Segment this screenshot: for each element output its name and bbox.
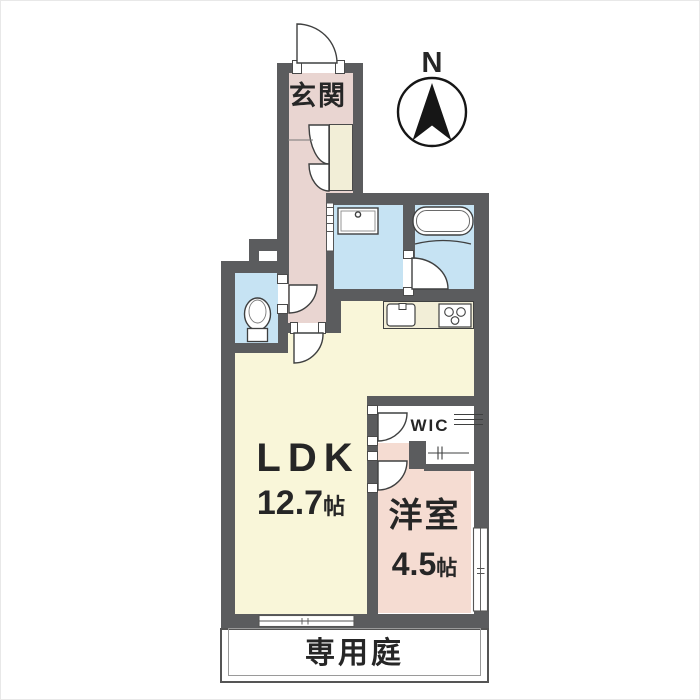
western-room-label: 洋室 (378, 499, 471, 533)
door-frame-stub (277, 304, 288, 314)
kitchen-counter (383, 301, 474, 329)
genkan-label: 玄関 (286, 83, 350, 110)
wall (474, 193, 489, 628)
ldk-label: LDK (235, 438, 374, 478)
wall (326, 196, 334, 291)
door-frame-stub (335, 60, 345, 74)
western-room-size-value: 4.5 (392, 546, 436, 582)
wic-floor-lower (426, 443, 471, 464)
wall (367, 396, 489, 406)
western-room-size-label: 4.5帖 (378, 548, 471, 580)
shoe-closet (329, 124, 353, 191)
entrance-door-swing (297, 24, 337, 63)
door-frame-stub (277, 274, 288, 284)
door-frame-stub (318, 322, 326, 334)
north-label: N (411, 49, 453, 78)
compass-ring (398, 78, 466, 146)
wall (424, 464, 474, 471)
private-garden-label: 専用庭 (220, 639, 489, 669)
floor-plan: 玄関 N WIC LDK 12.7帖 洋室 4.5帖 専用庭 (0, 0, 700, 700)
ldk-size-value: 12.7 (257, 484, 323, 522)
wic-label: WIC (405, 417, 455, 434)
wall (326, 193, 474, 205)
ldk-size-unit: 帖 (323, 494, 345, 519)
door-frame-stub (367, 483, 378, 493)
washroom-floor (334, 204, 403, 289)
door-frame-stub (403, 250, 414, 259)
wall (326, 289, 474, 301)
north-arrow-icon (413, 83, 452, 141)
wall (221, 263, 235, 628)
compass (398, 78, 466, 146)
hallway-floor (288, 193, 326, 323)
bathroom-floor (415, 204, 474, 289)
wall (223, 343, 288, 353)
door-frame-stub (403, 287, 414, 296)
ldk-floor-mid (288, 333, 367, 353)
toilet-floor (235, 273, 278, 343)
ldk-size-label: 12.7帖 (235, 486, 367, 520)
wall (326, 289, 341, 333)
door-frame-stub (290, 322, 298, 334)
wall (367, 396, 378, 614)
western-room-size-unit: 帖 (436, 557, 457, 580)
door-frame-stub (292, 60, 302, 74)
wall (221, 614, 489, 628)
door-frame-stub (367, 405, 378, 415)
wall (353, 63, 363, 196)
